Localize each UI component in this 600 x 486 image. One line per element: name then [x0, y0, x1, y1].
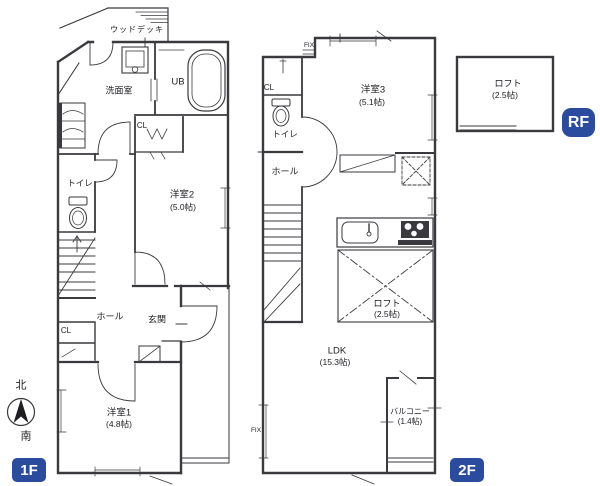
- label-room1-size: (4.8帖): [106, 420, 132, 429]
- toilet-icon-1f: [69, 197, 87, 229]
- label-f2-loft-size: (2.5帖): [374, 310, 400, 319]
- label-room3-size: (5.1帖): [359, 98, 385, 107]
- label-washroom: 洗面室: [105, 87, 132, 96]
- label-f2-toilet: トイレ: [272, 130, 298, 139]
- f2-counter-shelf: [340, 155, 395, 172]
- label-f1-toilet: トイレ: [67, 179, 93, 188]
- badge-rf: RF: [562, 108, 595, 137]
- label-f1-hall: ホール: [96, 313, 123, 322]
- label-room2-size: (5.0帖): [170, 203, 196, 212]
- label-f1-closet-upper: CL: [137, 122, 147, 130]
- label-room1-name: 洋室1: [107, 408, 131, 418]
- compass-north-label: 北: [16, 381, 27, 392]
- label-room2-name: 洋室2: [170, 190, 194, 200]
- label-f1-closet-lower: CL: [61, 327, 71, 335]
- label-room3-name: 洋室3: [361, 85, 385, 95]
- floorplan-canvas: ウッドデッキ 洗面室 UB CL トイレ 洋室2 (5.0帖) ホール 玄関 C…: [0, 0, 600, 486]
- f1-door-arcs: [90, 42, 217, 401]
- label-balcony-size: (1.4帖): [398, 418, 422, 426]
- badge-2f: 2F: [450, 458, 484, 482]
- f2-closet-pole: [280, 59, 286, 73]
- f1-inner-walls: [58, 42, 228, 362]
- label-rf-loft-size: (2.5帖): [492, 91, 518, 100]
- toilet-icon-2f: [272, 99, 290, 126]
- floorplan-drawing: [0, 0, 600, 486]
- stove-icon: [398, 221, 432, 245]
- bathtub-icon: [151, 50, 225, 111]
- label-f2-fix-top: FIX: [304, 43, 314, 50]
- label-f2-closet: CL: [264, 84, 274, 92]
- compass-icon: [8, 399, 35, 426]
- f1-vanity-icon: [58, 103, 85, 148]
- badge-1f: 1F: [12, 458, 46, 482]
- kitchen-sink-icon: [342, 222, 378, 243]
- compass-south-label: 南: [21, 432, 32, 443]
- label-f2-loft-name: ロフト: [373, 300, 400, 309]
- f1-genkan-shoebox: [139, 346, 160, 362]
- label-entrance: 玄関: [148, 316, 166, 325]
- f2-stairs: [263, 205, 302, 323]
- f2-inner-walls: [263, 57, 435, 322]
- refrigerator-space: [402, 157, 430, 185]
- label-f2-fix-left: FIX: [251, 428, 261, 435]
- label-ldk-size: (15.3帖): [320, 358, 351, 367]
- f1-windows: [57, 38, 230, 484]
- label-f2-hall: ホール: [271, 168, 298, 177]
- f2-door-arcs: [302, 117, 337, 187]
- label-unit-bath: UB: [171, 77, 184, 87]
- label-rf-loft-name: ロフト: [494, 80, 521, 89]
- label-wood-deck: ウッドデッキ: [110, 26, 164, 34]
- f1-stairs: [58, 236, 95, 296]
- label-balcony-name: バルコニー: [390, 408, 430, 416]
- label-ldk-name: LDK: [328, 346, 346, 356]
- washing-machine-icon: [122, 47, 148, 73]
